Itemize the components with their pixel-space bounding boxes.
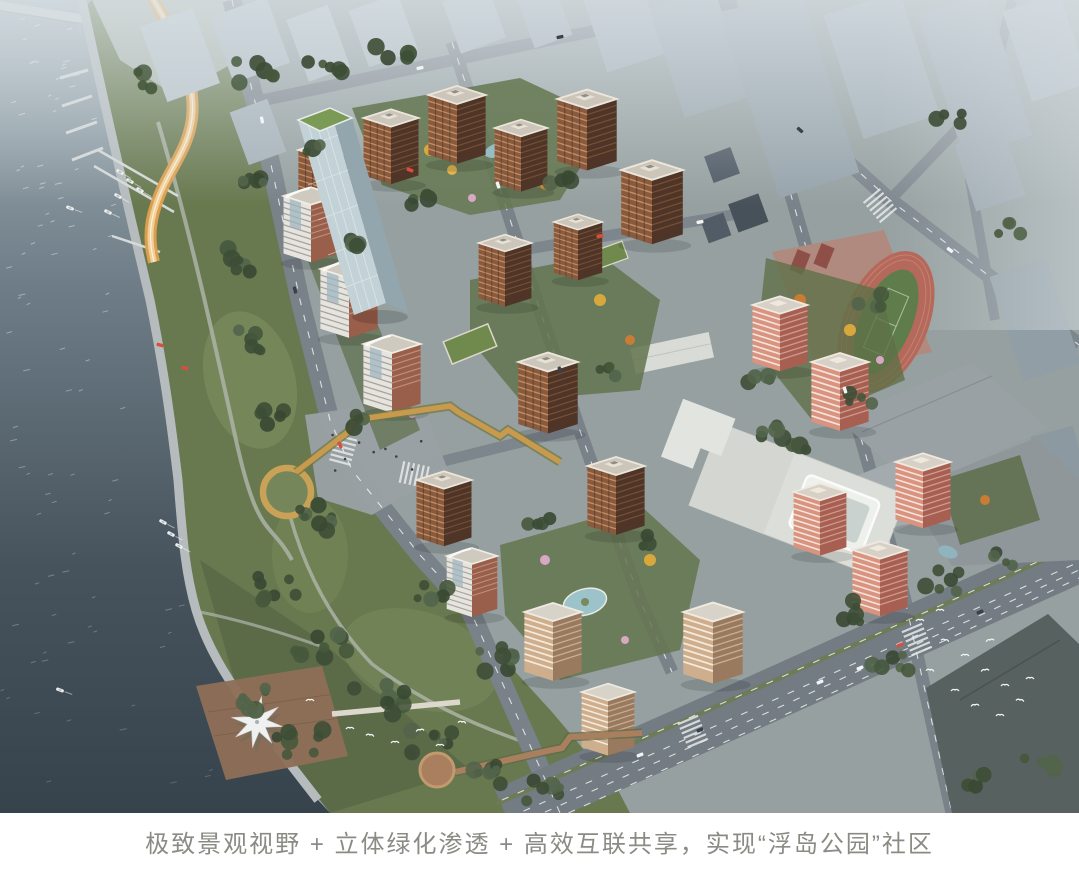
pedestrian <box>334 469 337 472</box>
tree <box>404 744 420 760</box>
tree <box>475 647 484 656</box>
tree <box>994 229 1003 238</box>
tree <box>331 61 347 77</box>
tree <box>944 573 958 587</box>
tree <box>256 346 266 356</box>
tree <box>414 594 422 602</box>
tree <box>302 148 310 156</box>
tree <box>274 410 286 422</box>
tree <box>1002 558 1010 566</box>
tree <box>932 564 944 576</box>
tree <box>400 51 414 65</box>
walkway-plaza <box>420 753 454 787</box>
tree <box>1004 217 1017 230</box>
tree <box>1020 754 1030 764</box>
tree <box>301 55 315 69</box>
tree <box>239 693 248 702</box>
tree <box>954 117 967 130</box>
tree <box>494 648 511 665</box>
tree <box>477 663 494 680</box>
tree <box>917 578 934 595</box>
tree <box>492 765 501 774</box>
pedestrian <box>331 434 334 437</box>
tree <box>429 730 439 740</box>
pedestrian <box>358 441 361 444</box>
tree <box>928 111 944 127</box>
tree <box>756 426 768 438</box>
tree <box>521 795 532 806</box>
tree <box>875 301 887 313</box>
image-caption: 极致景观视野 + 立体绿化渗透 + 高效互联共享，实现“浮岛公园”社区 <box>0 813 1079 869</box>
tree <box>848 607 864 623</box>
tree <box>379 678 393 692</box>
tree <box>466 762 483 779</box>
tree <box>223 250 241 268</box>
tree <box>845 398 853 406</box>
tree <box>310 497 326 513</box>
tree <box>421 189 433 201</box>
tree <box>747 369 762 384</box>
tree <box>314 139 326 151</box>
tree <box>256 402 272 418</box>
tree <box>957 109 967 119</box>
tree <box>310 630 324 644</box>
tree <box>238 176 249 187</box>
tree <box>282 749 293 760</box>
tree <box>596 365 605 374</box>
tree <box>231 56 242 67</box>
tree <box>419 580 429 590</box>
pedestrian <box>420 440 423 443</box>
pedestrian <box>384 448 387 451</box>
tree <box>641 529 654 542</box>
tree <box>259 178 268 187</box>
tree <box>444 725 459 740</box>
tree <box>290 589 302 601</box>
tree <box>260 683 271 694</box>
tree <box>886 650 900 664</box>
tree <box>898 650 907 659</box>
pedestrian <box>344 458 347 461</box>
tree <box>397 685 412 700</box>
tree <box>260 417 275 432</box>
tree <box>319 642 329 652</box>
masterplan-figure: 极致景观视野 + 立体绿化渗透 + 高效互联共享，实现“浮岛公园”社区 <box>0 0 1079 869</box>
tree <box>354 414 363 423</box>
tree <box>384 705 402 723</box>
tree <box>951 586 962 597</box>
tree <box>901 663 915 677</box>
tree <box>249 55 265 71</box>
tree <box>561 170 575 184</box>
tree <box>145 82 157 94</box>
tree <box>311 515 327 531</box>
tree <box>313 731 324 742</box>
tree <box>852 297 866 311</box>
tree <box>298 649 308 659</box>
tree <box>349 238 365 254</box>
tree <box>609 370 622 383</box>
tree <box>873 287 889 303</box>
tree <box>330 627 347 644</box>
tree <box>976 767 992 783</box>
tree <box>339 643 354 658</box>
tree <box>257 590 272 605</box>
tree <box>423 591 439 607</box>
tree <box>1043 755 1061 773</box>
tree <box>536 782 549 795</box>
tree <box>536 517 549 530</box>
tree <box>857 393 866 402</box>
pedestrian <box>411 468 414 471</box>
pedestrian <box>395 455 398 458</box>
pedestrian <box>372 451 375 454</box>
tree <box>404 198 418 212</box>
tree <box>768 421 785 438</box>
tree <box>347 681 361 695</box>
tree <box>295 505 305 515</box>
tree <box>233 325 244 336</box>
tree <box>243 265 257 279</box>
tree <box>760 368 776 384</box>
tree <box>231 74 247 90</box>
tree <box>380 50 395 65</box>
tree <box>241 700 258 717</box>
tree <box>493 776 508 791</box>
tree <box>254 578 266 590</box>
aerial-rendering-svg <box>0 0 1079 813</box>
tree <box>280 724 296 740</box>
tree <box>133 67 142 76</box>
tree <box>309 748 319 758</box>
tree <box>988 550 1000 562</box>
tree <box>934 584 944 594</box>
tree <box>265 70 277 82</box>
tree <box>284 574 294 584</box>
tree <box>1014 227 1028 241</box>
tree <box>248 326 263 341</box>
tree <box>866 397 879 410</box>
aerial-rendering <box>0 0 1079 813</box>
